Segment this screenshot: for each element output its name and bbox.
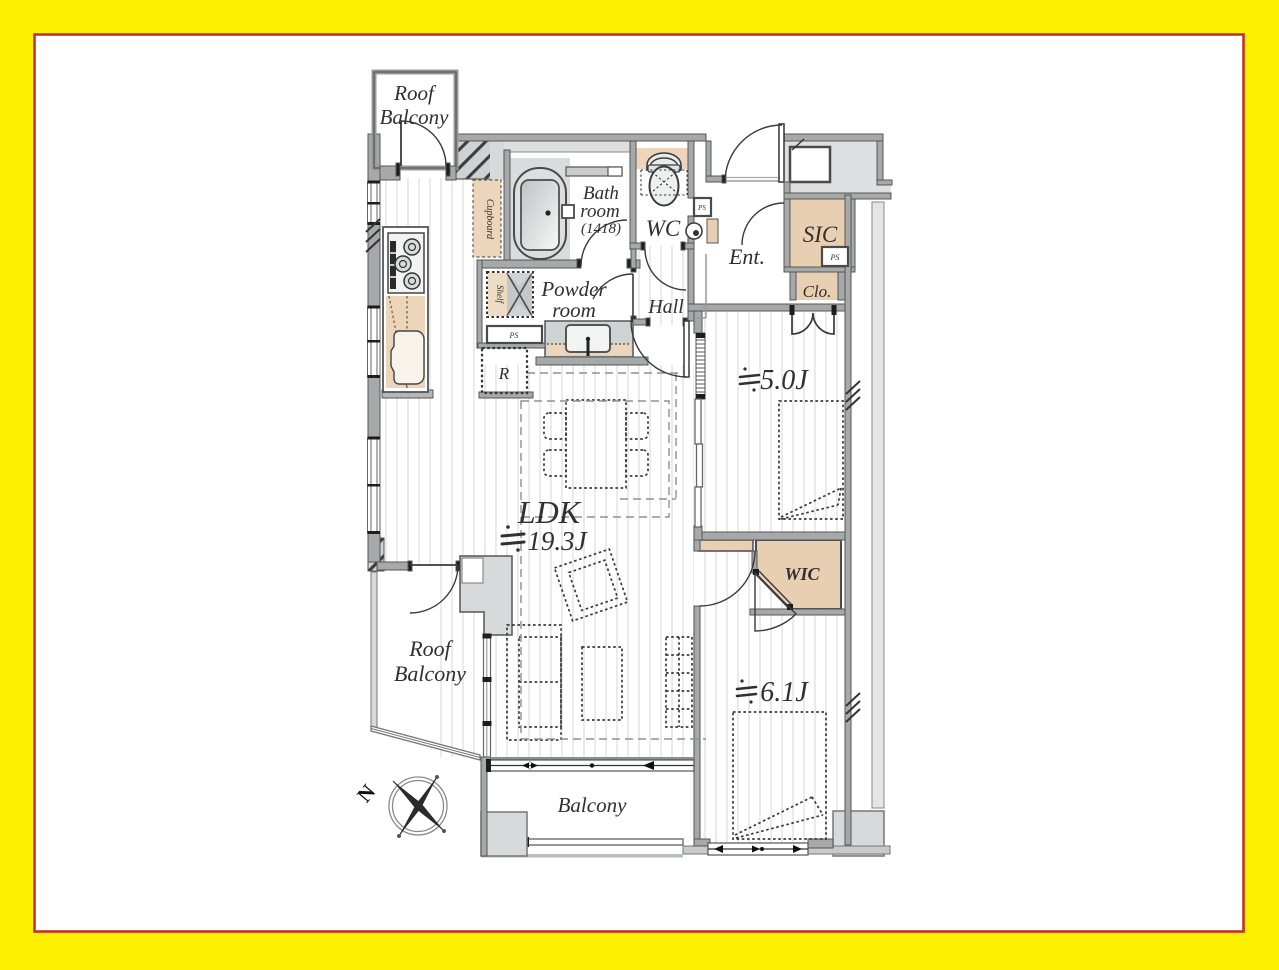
svg-text:PS: PS [830, 253, 840, 262]
svg-text:Balcony: Balcony [558, 793, 627, 817]
svg-text:Balcony: Balcony [394, 661, 466, 686]
svg-text:PS: PS [697, 204, 706, 212]
svg-text:PS: PS [509, 331, 519, 340]
svg-text:Ent.: Ent. [728, 244, 765, 269]
svg-text:6.1J: 6.1J [760, 677, 809, 708]
svg-text:WIC: WIC [784, 564, 820, 584]
svg-text:Balcony: Balcony [380, 105, 449, 129]
svg-text:room: room [580, 201, 619, 222]
svg-text:WC: WC [646, 216, 681, 241]
svg-text:Cupboard: Cupboard [484, 199, 495, 240]
svg-text:Hall: Hall [647, 296, 684, 318]
svg-text:Roof: Roof [393, 81, 437, 105]
svg-text:SIC: SIC [803, 222, 838, 247]
svg-text:R: R [498, 364, 510, 383]
svg-text:Roof: Roof [408, 636, 453, 661]
svg-text:Clo.: Clo. [803, 282, 832, 301]
svg-text:5.0J: 5.0J [760, 365, 809, 396]
svg-text:(1418): (1418) [581, 221, 621, 237]
svg-text:LDK: LDK [517, 494, 582, 530]
svg-text:room: room [552, 298, 596, 322]
svg-text:19.3J: 19.3J [527, 526, 588, 556]
svg-text:Shelf: Shelf [495, 285, 505, 304]
